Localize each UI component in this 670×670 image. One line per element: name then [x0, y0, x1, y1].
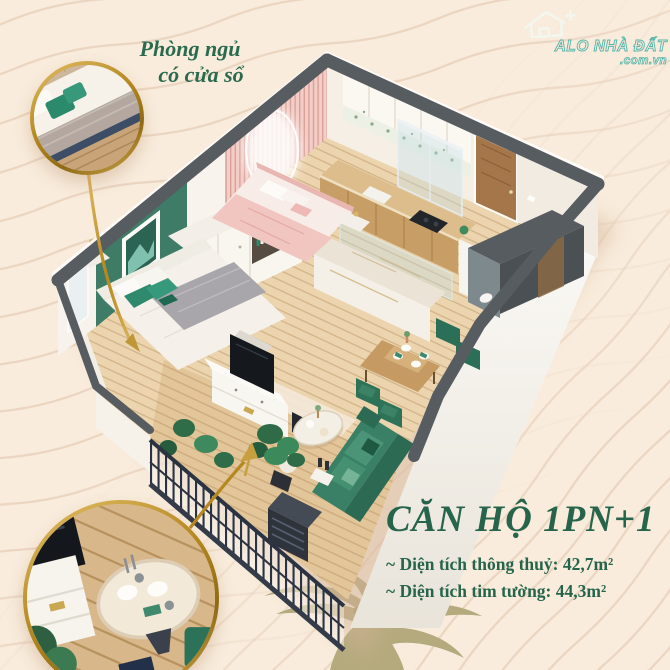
unit-info: CĂN HỘ 1PN+1 ~ Diện tích thông thuỷ: 42,… [386, 498, 664, 605]
brand-name: ALO NHÀ ĐẤT [517, 38, 667, 56]
brand-logo: ALO NHÀ ĐẤT .com.vn [517, 8, 667, 67]
spec-wall-area: ~ Diện tích tim tường: 44,3m² [386, 578, 664, 605]
living-room-closeup-photo [27, 504, 215, 670]
spec-clear-area: ~ Diện tích thông thuỷ: 42,7m² [386, 551, 664, 578]
note-line1: Phòng ngủ [140, 36, 241, 61]
note-line2: có cửa sổ [104, 62, 276, 88]
unit-title: CĂN HỘ 1PN+1 [386, 498, 664, 541]
house-icon [517, 8, 613, 38]
poster-canvas: Phòng ngủ có cửa sổ CĂN HỘ 1PN+1 ~ Diện … [0, 0, 670, 670]
brand-domain: .com.vn [517, 55, 667, 67]
bedroom-note: Phòng ngủ có cửa sổ [104, 36, 276, 88]
